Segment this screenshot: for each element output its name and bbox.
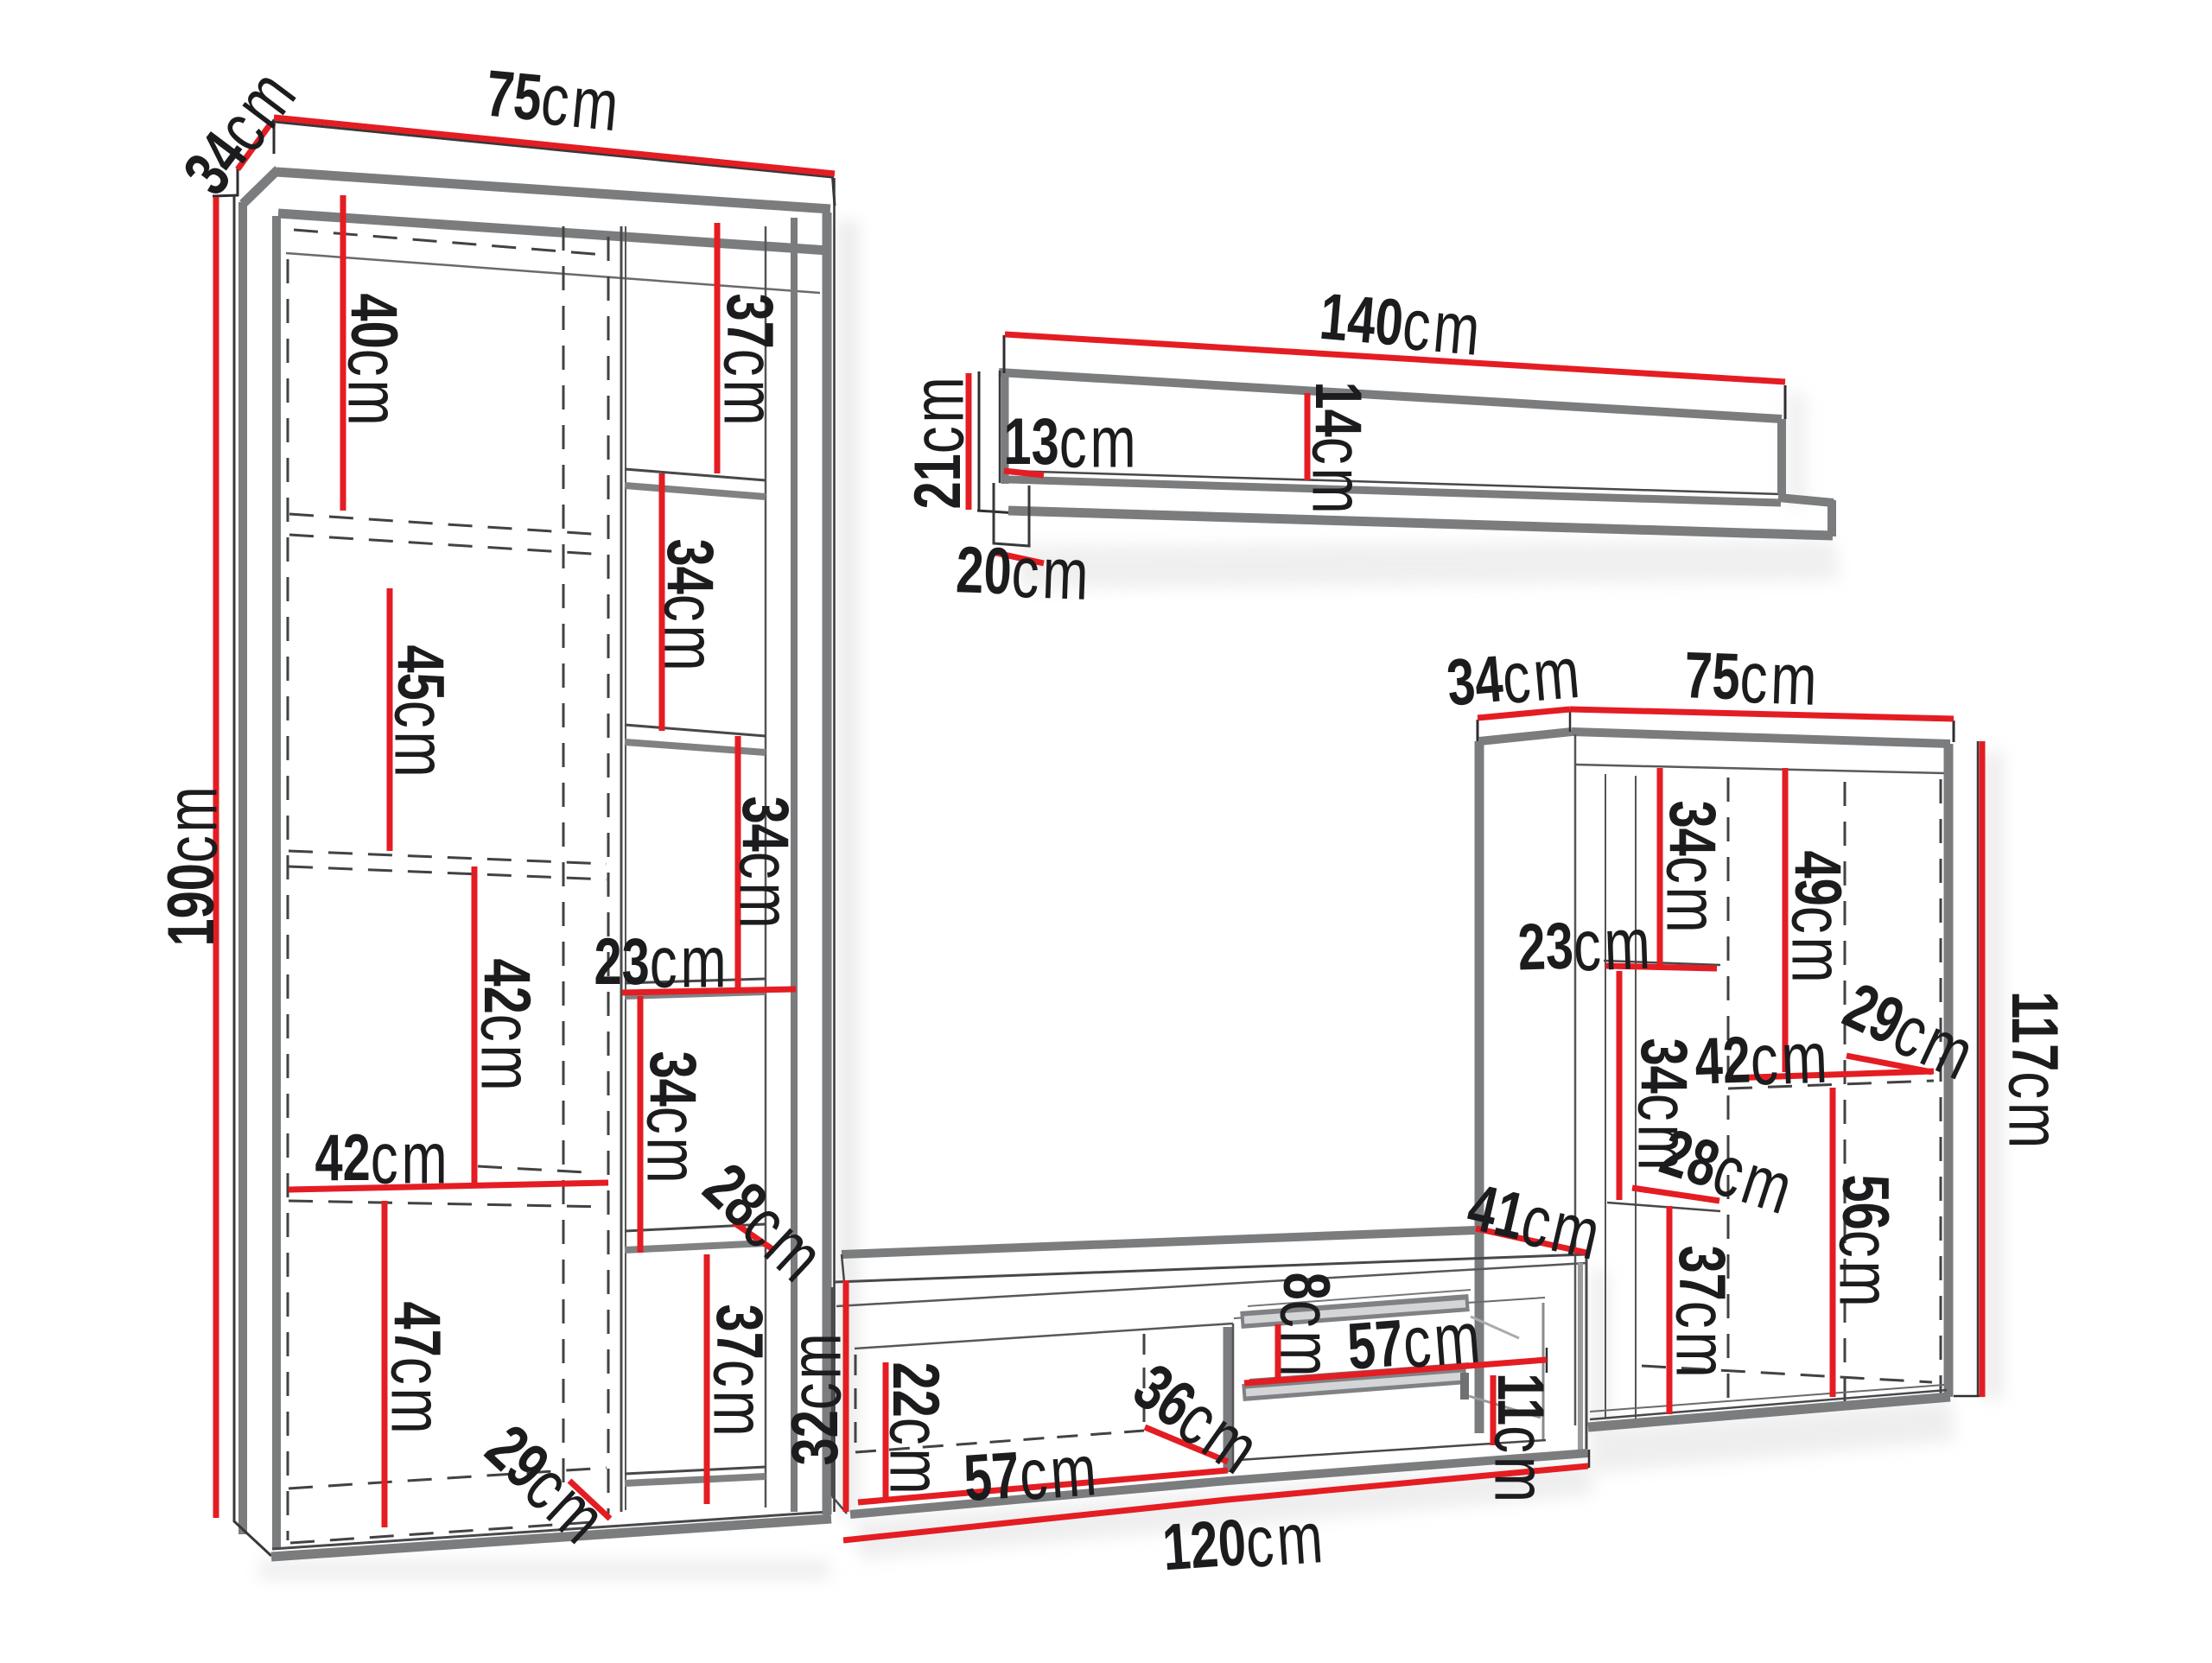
svg-text:22cm: 22cm [875, 1362, 957, 1498]
svg-text:21cm: 21cm [897, 374, 979, 510]
svg-text:14cm: 14cm [1298, 382, 1380, 517]
svg-text:117cm: 117cm [1994, 991, 2076, 1152]
svg-text:57cm: 57cm [961, 1428, 1102, 1519]
svg-text:8cm: 8cm [1266, 1273, 1348, 1381]
svg-text:120cm: 120cm [1160, 1495, 1328, 1589]
svg-text:20cm: 20cm [955, 529, 1093, 615]
svg-text:42cm: 42cm [315, 1117, 451, 1199]
svg-text:34cm: 34cm [1444, 631, 1586, 724]
svg-text:34cm: 34cm [725, 797, 807, 932]
svg-text:42cm: 42cm [467, 959, 549, 1095]
svg-text:75cm: 75cm [1683, 634, 1821, 720]
svg-text:57cm: 57cm [1344, 1296, 1486, 1388]
svg-text:40cm: 40cm [334, 294, 416, 429]
svg-text:34cm: 34cm [1652, 801, 1734, 936]
svg-text:37cm: 37cm [1662, 1246, 1744, 1381]
svg-text:47cm: 47cm [377, 1302, 459, 1438]
svg-text:56cm: 56cm [1825, 1175, 1907, 1311]
svg-text:190cm: 190cm [150, 783, 232, 946]
svg-text:42cm: 42cm [1694, 1016, 1832, 1102]
svg-text:34cm: 34cm [632, 1051, 715, 1187]
svg-text:45cm: 45cm [380, 645, 462, 781]
svg-text:37cm: 37cm [709, 294, 791, 429]
svg-text:13cm: 13cm [1004, 401, 1140, 483]
svg-text:11cm: 11cm [1480, 1373, 1562, 1506]
svg-text:23cm: 23cm [1516, 902, 1655, 988]
svg-text:23cm: 23cm [594, 921, 730, 1003]
svg-text:49cm: 49cm [1777, 851, 1859, 987]
svg-text:34cm: 34cm [650, 539, 732, 675]
svg-text:32cm: 32cm [774, 1330, 856, 1466]
svg-text:37cm: 37cm [699, 1304, 781, 1440]
